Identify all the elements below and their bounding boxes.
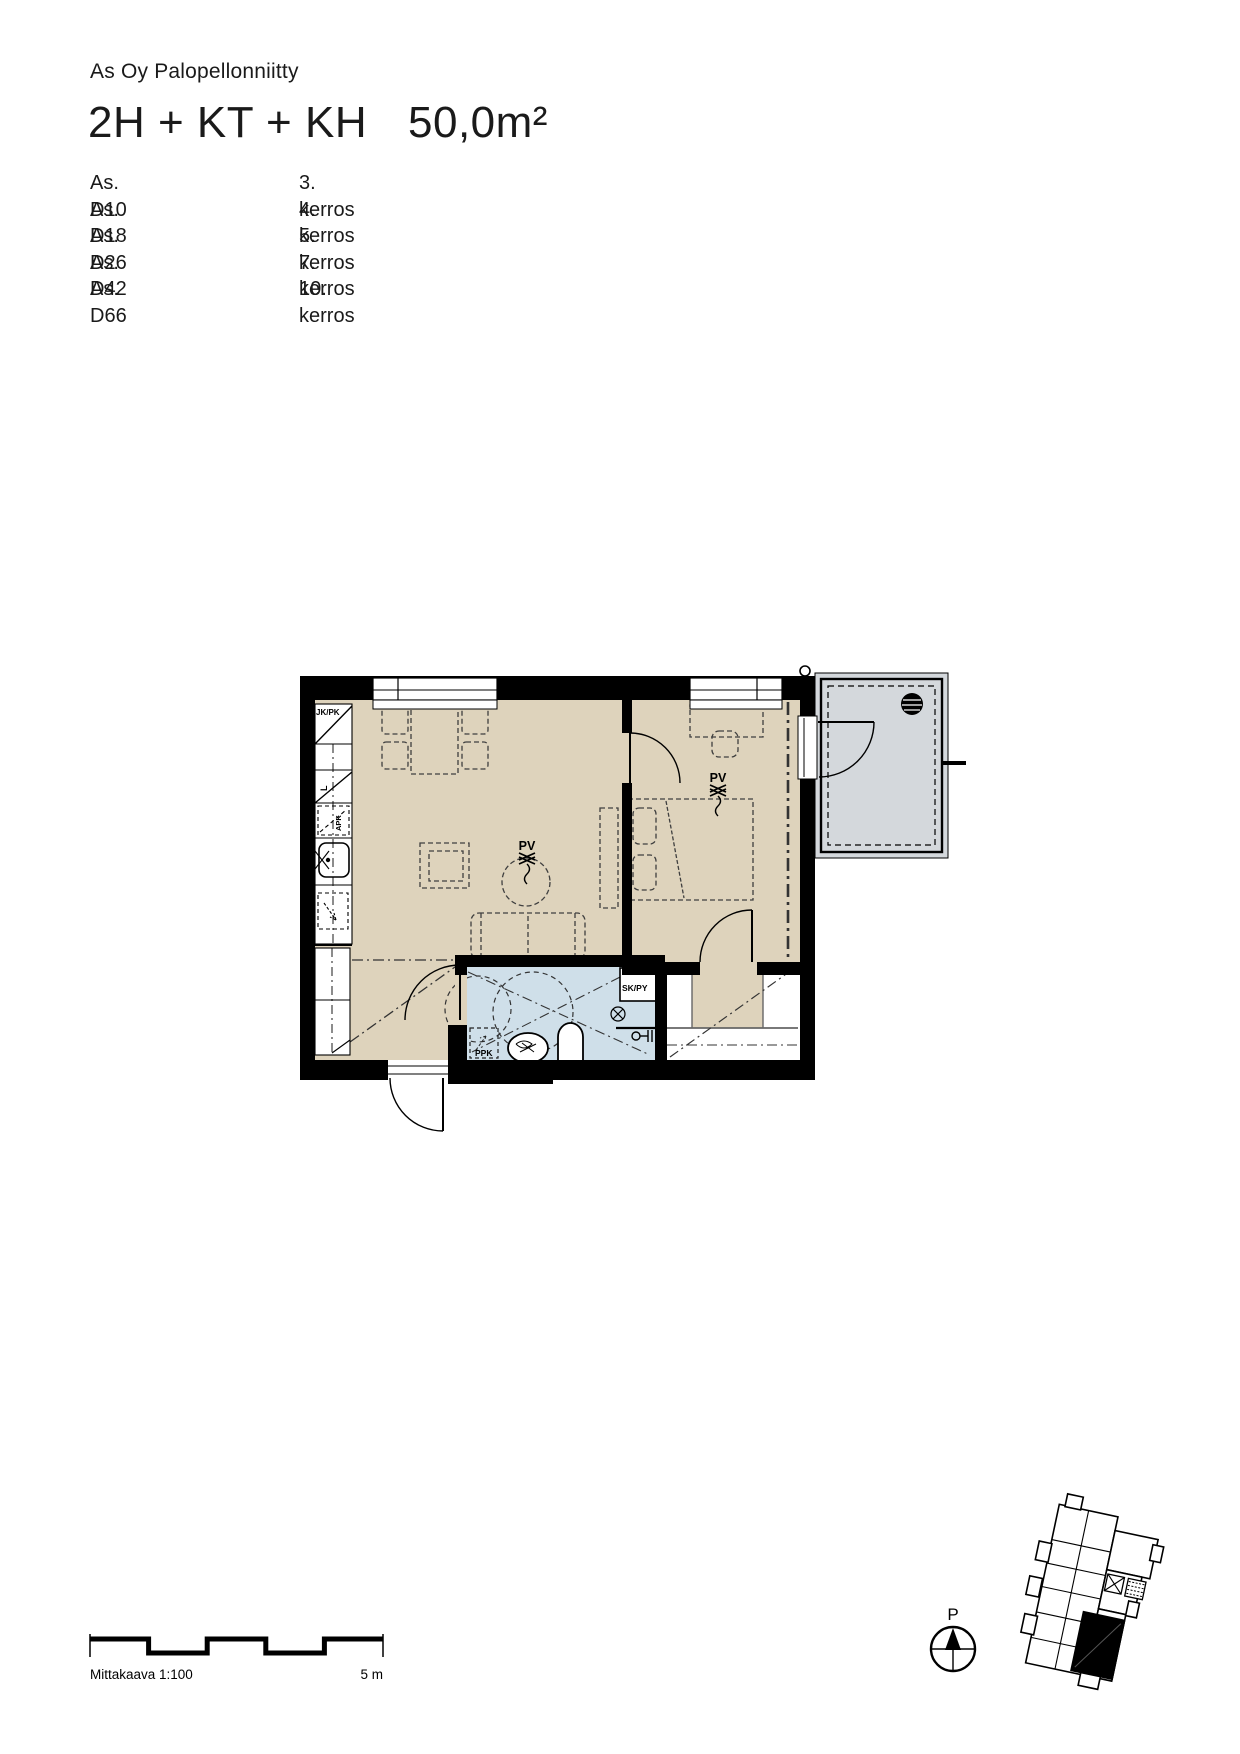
balcony [800,666,966,858]
building-location-diagram [1010,1490,1171,1697]
downpipe-icon [800,666,810,676]
balcony-rail-tick [943,761,966,765]
toilet-icon [558,1023,583,1062]
pv-label: PV [710,771,727,785]
bathroom-north-wall [455,955,665,967]
north-arrow: P [931,1605,975,1671]
bedroom-window [690,678,782,709]
washbasin-icon [508,1033,548,1063]
bedroom-floor [632,700,800,962]
scale-max-label: 5 m [360,1667,383,1682]
stairwell-icon [1104,1574,1124,1594]
living-room-window [373,678,497,709]
bathroom-east-wall [655,962,667,1060]
hall-wardrobe-strip [315,948,350,1055]
scale-label: Mittakaava 1:100 [90,1667,193,1682]
dishwasher-label: APK [334,815,343,831]
entrance-door [388,1060,448,1131]
bathroom-west-wall [448,1025,467,1060]
north-label: P [947,1605,958,1624]
closet-label: SK/PY [622,983,648,993]
stove-label: L [319,785,329,791]
hall-passage-floor [692,975,763,1028]
fridge-label: JK/PK [316,708,340,717]
washing-machine-label: PPK [475,1048,493,1058]
elevator-icon [1125,1578,1146,1599]
scale-bar: Mittakaava 1:100 5 m [90,1634,383,1682]
living-room-floor [315,700,622,955]
balcony-drain-icon [901,693,923,715]
pv-label: PV [519,839,536,853]
floorplan-page: { "header": { "company": "As Oy Palopell… [0,0,1240,1754]
floor-plan-drawing: JK/PK L APK PPK SK/PY PV PV Mittakaava 1… [0,0,1240,1754]
